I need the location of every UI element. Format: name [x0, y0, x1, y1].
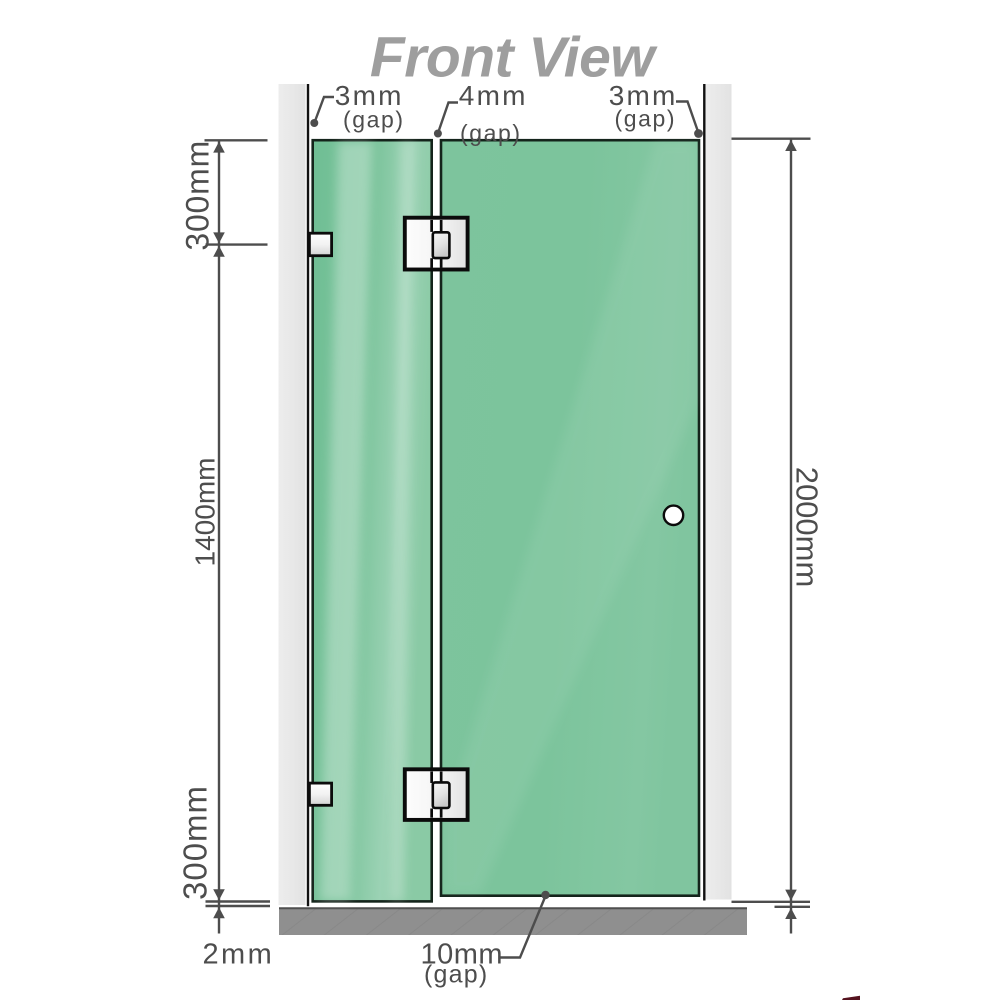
svg-text:(gap): (gap) — [460, 120, 522, 146]
svg-text:2mm: 2mm — [203, 939, 275, 971]
svg-text:300mm: 300mm — [177, 785, 214, 900]
svg-text:300mm: 300mm — [180, 140, 216, 251]
svg-text:(gap): (gap) — [343, 106, 405, 132]
svg-text:2000mm: 2000mm — [790, 467, 825, 588]
svg-text:(gap): (gap) — [615, 105, 677, 131]
svg-text:1400mm: 1400mm — [190, 458, 221, 567]
svg-text:4mm: 4mm — [459, 80, 528, 111]
svg-text:(gap): (gap) — [424, 961, 488, 989]
